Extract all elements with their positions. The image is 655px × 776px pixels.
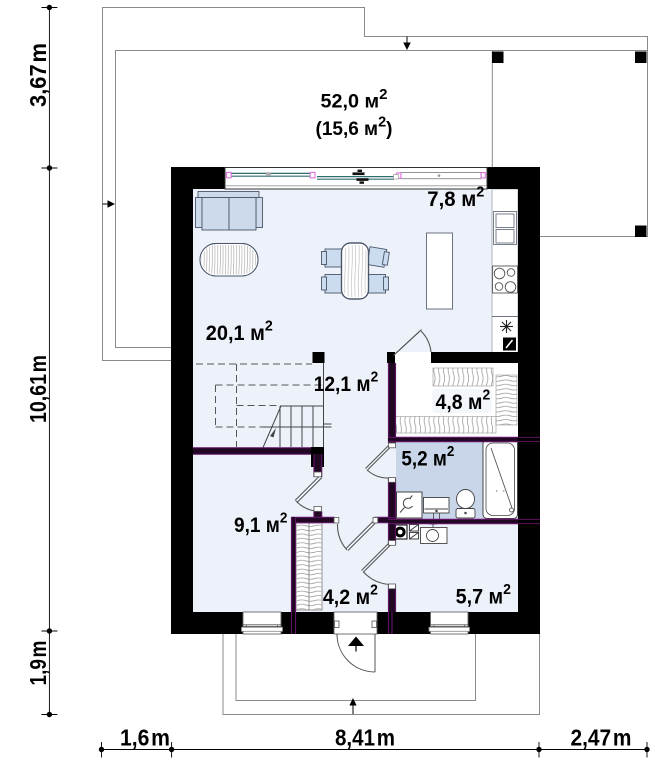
svg-text:52,0 м2: 52,0 м2 [321,87,388,113]
svg-text:3,67 m: 3,67 m [25,43,51,107]
svg-text:5,7 м2: 5,7 м2 [456,581,511,609]
svg-text:1,9 m: 1,9 m [25,641,51,686]
svg-text:2,47 m: 2,47 m [571,725,632,751]
svg-text:10,61 m: 10,61 m [25,355,51,423]
svg-text:7,8 м2: 7,8 м2 [427,184,484,212]
svg-text:9,1 м2: 9,1 м2 [234,510,287,538]
svg-text:5,2 м2: 5,2 м2 [401,443,454,471]
svg-text:1,6 m: 1,6 m [120,725,170,751]
svg-text:4,2 м2: 4,2 м2 [323,582,378,610]
svg-text:8,41 m: 8,41 m [335,725,395,751]
svg-text:4,8 м2: 4,8 м2 [436,387,491,415]
svg-text:20,1 м2: 20,1 м2 [206,318,273,346]
svg-text:12,1 м2: 12,1 м2 [314,369,379,397]
